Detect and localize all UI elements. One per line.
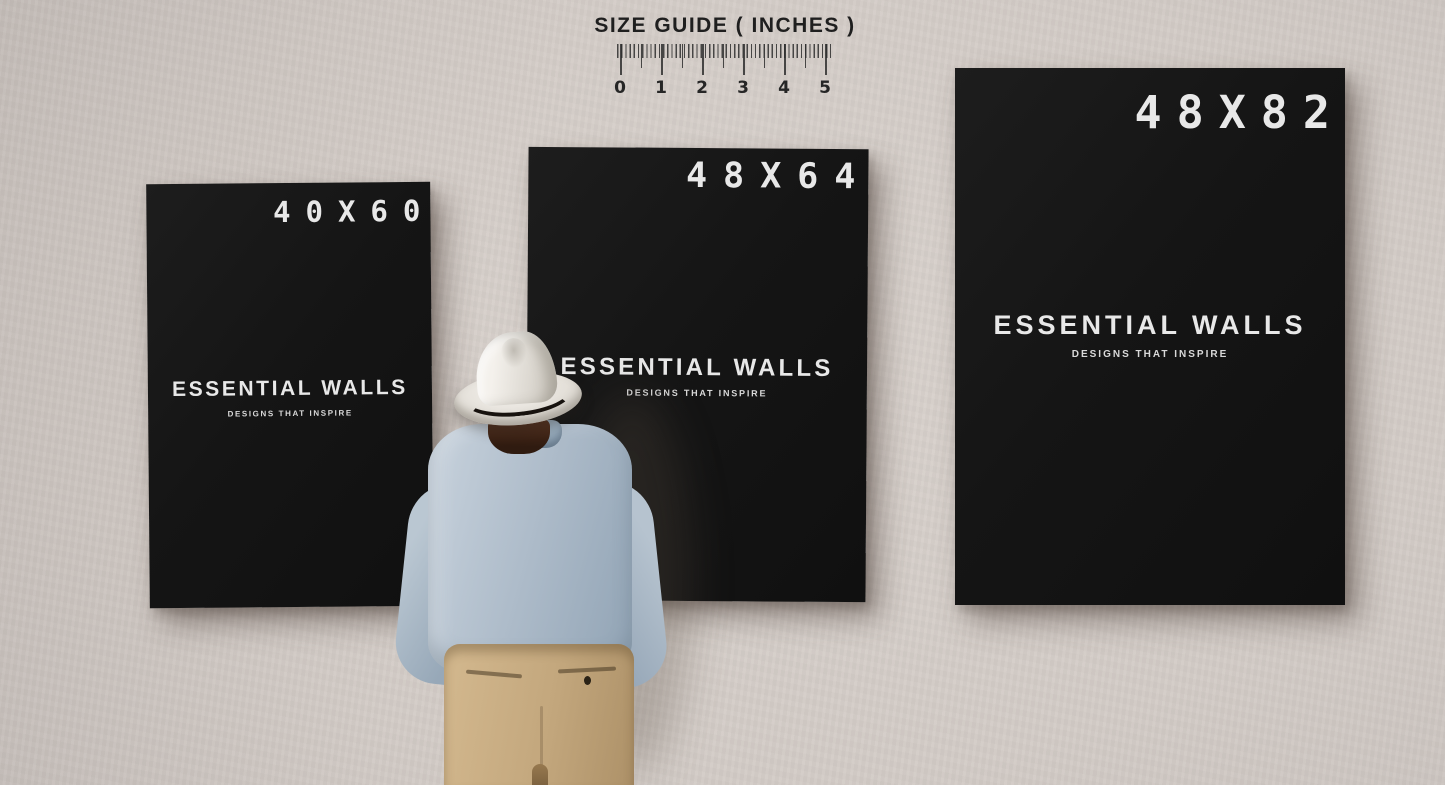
ruler: 0 1 2 3 4 5: [617, 44, 831, 102]
pants-pocket-right: [558, 666, 616, 673]
ruler-tick: [723, 44, 725, 68]
ruler-label-1: 1: [648, 78, 674, 98]
poster-size-label: 40X60: [273, 194, 436, 229]
poster-size-label: 48X64: [686, 156, 872, 197]
pants-button: [584, 676, 591, 685]
ruler-label-3: 3: [730, 78, 756, 98]
ruler-tick: [682, 44, 684, 68]
ruler-tick: [661, 44, 663, 75]
ruler-label-2: 2: [689, 78, 715, 98]
ruler-tick: [641, 44, 643, 68]
ruler-tick: [805, 44, 807, 68]
ruler-label-0: 0: [607, 78, 633, 98]
poster-tagline: DESIGNS THAT INSPIRE: [955, 349, 1345, 360]
ruler-tick: [764, 44, 766, 68]
ruler-tick: [702, 44, 704, 75]
poster-size-label: 48X82: [1135, 86, 1345, 139]
poster-tagline: DESIGNS THAT INSPIRE: [148, 408, 432, 419]
ruler-tick: [743, 44, 745, 75]
ruler-tick: [784, 44, 786, 75]
ruler-tick: [825, 44, 827, 75]
size-guide-title: SIZE GUIDE ( INCHES ): [560, 14, 890, 38]
poster-48x82: 48X82 ESSENTIAL WALLS DESIGNS THAT INSPI…: [955, 68, 1345, 605]
pants-pocket-left: [466, 670, 522, 679]
person-pants: [444, 644, 634, 785]
pants-leg-split: [532, 764, 548, 785]
poster-brand: ESSENTIAL WALLS: [955, 310, 1345, 341]
size-guide: SIZE GUIDE ( INCHES ) 0 1 2 3: [560, 12, 890, 102]
poster-brand: ESSENTIAL WALLS: [148, 376, 432, 402]
ruler-label-5: 5: [812, 78, 838, 98]
ruler-label-4: 4: [771, 78, 797, 98]
poster-40x60: 40X60 ESSENTIAL WALLS DESIGNS THAT INSPI…: [146, 182, 434, 608]
person-shirt: [428, 424, 632, 672]
wall-background: SIZE GUIDE ( INCHES ) 0 1 2 3: [0, 0, 1445, 785]
person-figure: [402, 332, 660, 785]
ruler-tick: [620, 44, 622, 75]
